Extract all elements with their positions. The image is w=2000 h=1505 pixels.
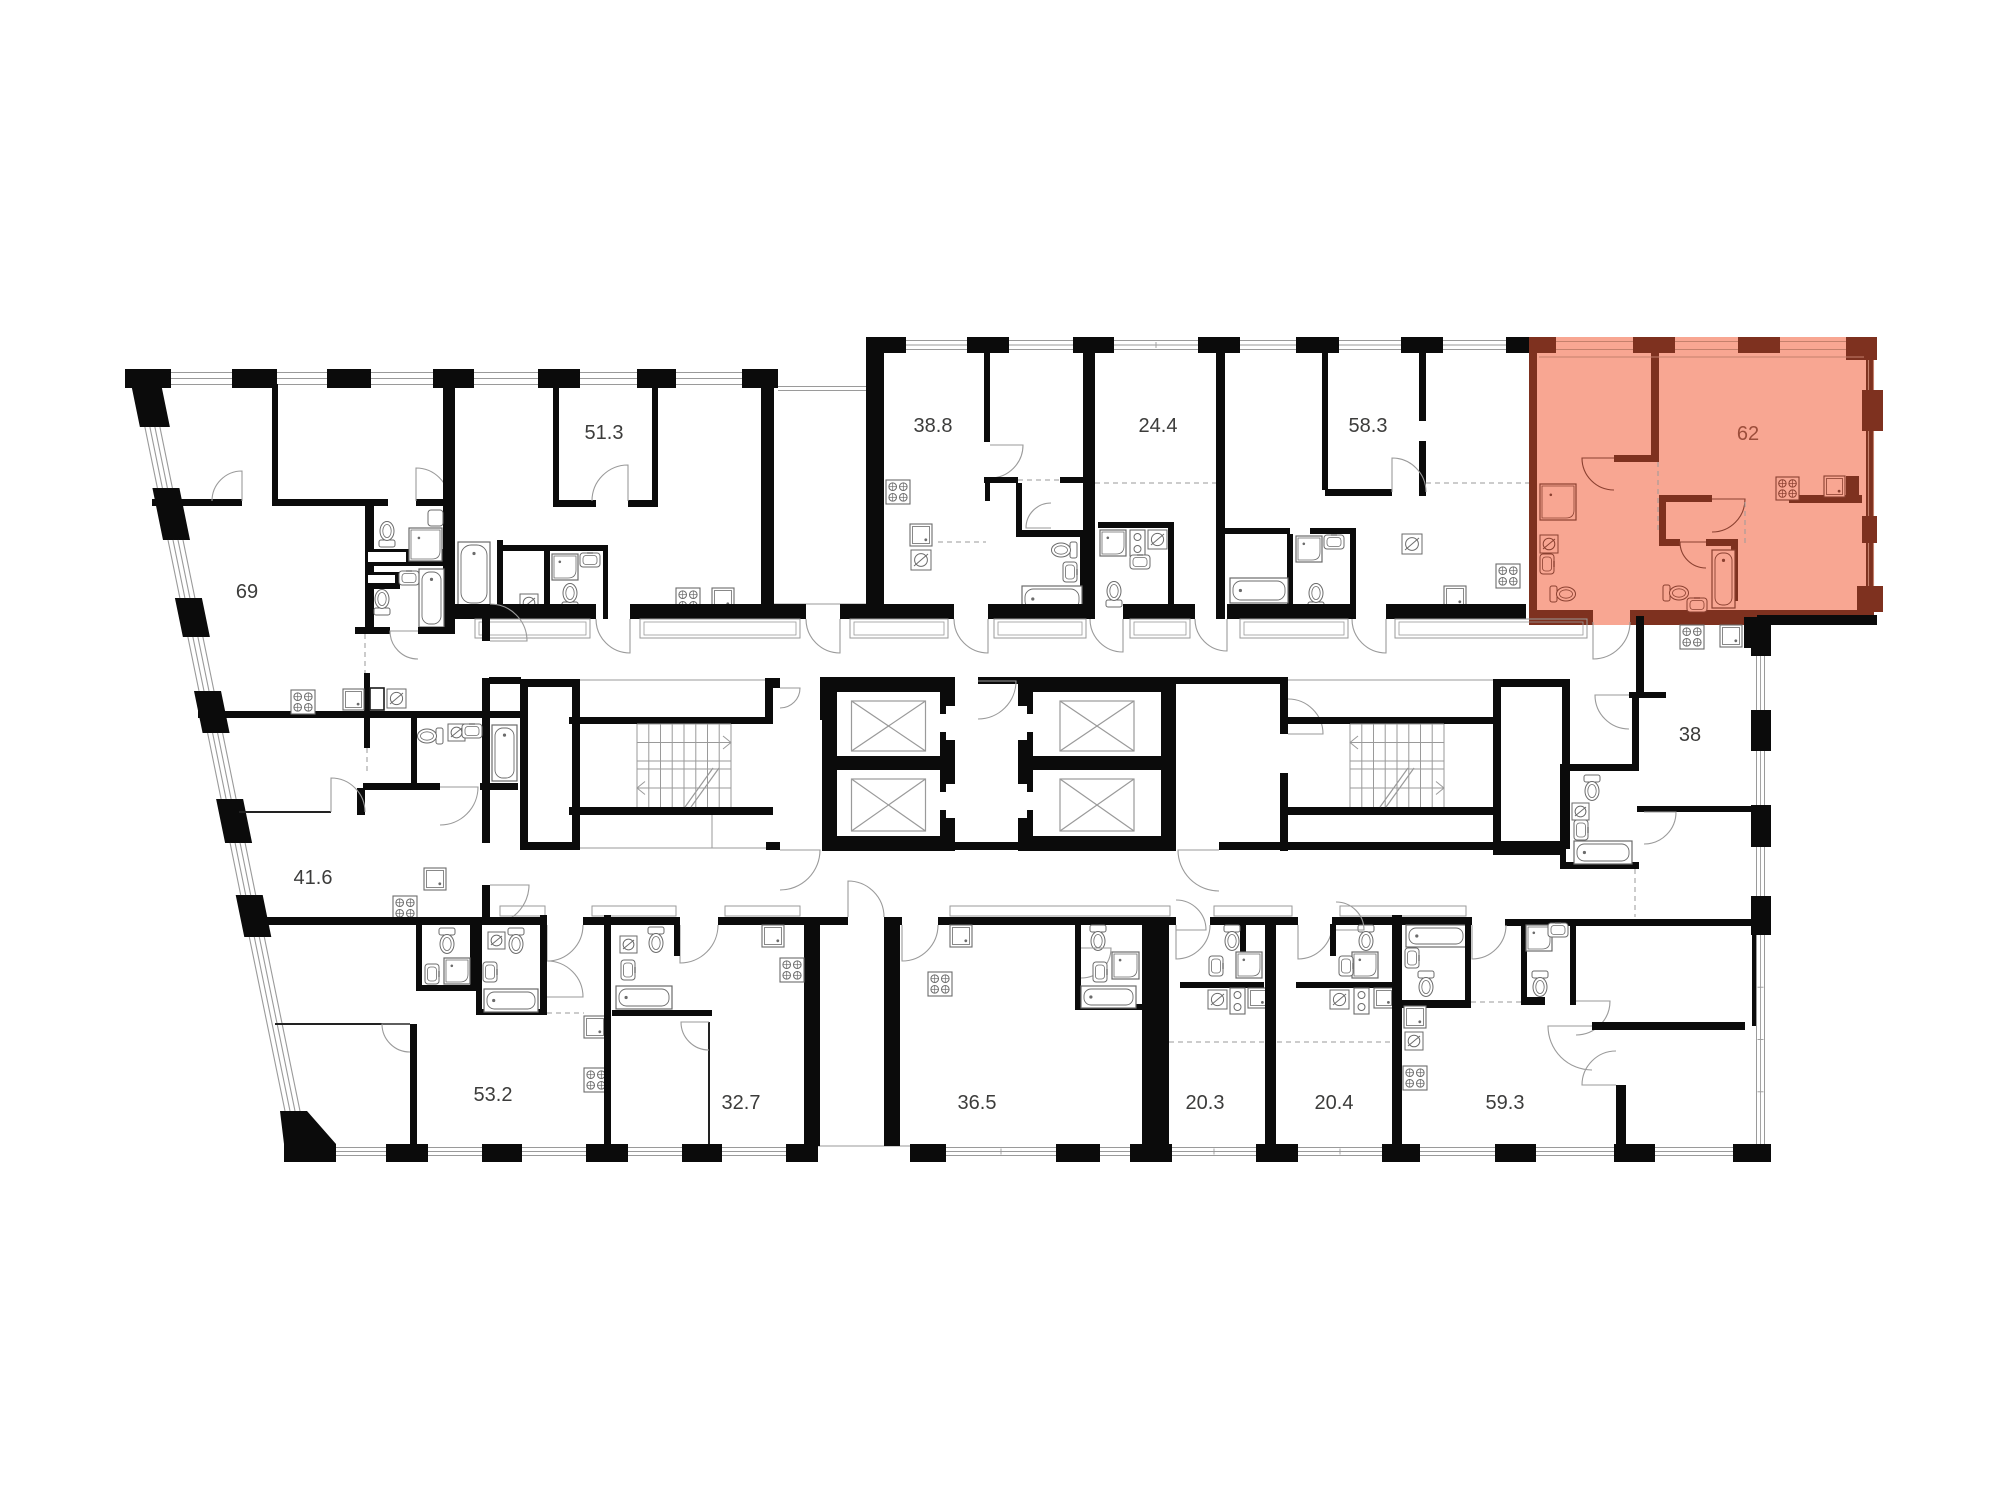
- svg-text:32.7: 32.7: [722, 1092, 761, 1114]
- svg-text:20.3: 20.3: [1186, 1092, 1225, 1114]
- svg-text:38.8: 38.8: [914, 415, 953, 437]
- svg-text:36.5: 36.5: [958, 1092, 997, 1114]
- svg-text:69: 69: [236, 581, 258, 603]
- svg-text:41.6: 41.6: [294, 867, 333, 889]
- svg-text:24.4: 24.4: [1139, 415, 1178, 437]
- svg-text:59.3: 59.3: [1486, 1092, 1525, 1114]
- svg-text:51.3: 51.3: [585, 422, 624, 444]
- svg-text:53.2: 53.2: [474, 1084, 513, 1106]
- svg-text:38: 38: [1679, 724, 1701, 746]
- svg-text:20.4: 20.4: [1315, 1092, 1354, 1114]
- svg-text:58.3: 58.3: [1349, 415, 1388, 437]
- svg-text:62: 62: [1737, 423, 1759, 445]
